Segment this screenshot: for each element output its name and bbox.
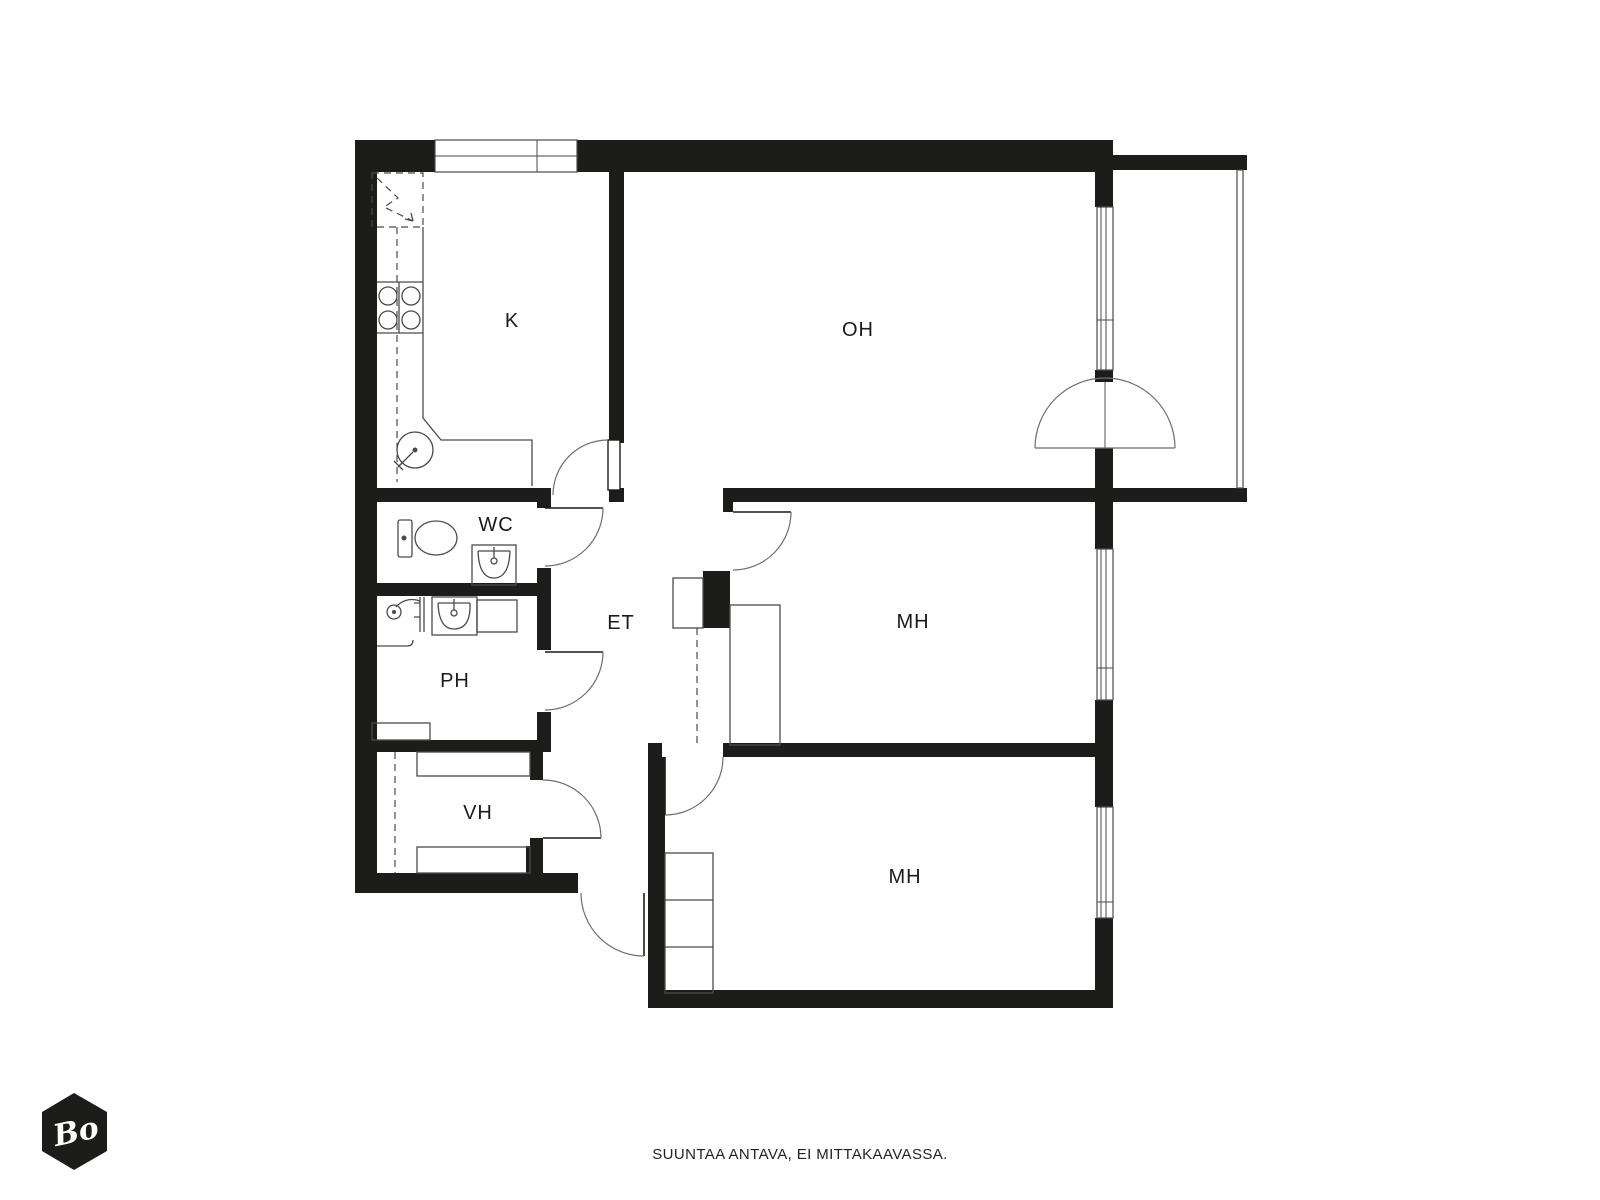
stove-icon — [377, 282, 423, 333]
wall — [1095, 448, 1113, 502]
room-labels: K OH WC ET PH MH VH MH — [440, 310, 929, 888]
hallway-closet — [673, 578, 703, 628]
room-label-bedroom-1: MH — [896, 611, 929, 633]
room-label-living-room: OH — [842, 319, 874, 341]
room-label-kitchen: K — [505, 310, 519, 332]
wall — [377, 583, 551, 596]
wall — [530, 752, 543, 780]
wc-washbasin-icon — [472, 545, 516, 585]
wall — [537, 502, 551, 508]
kitchen-sink-icon — [394, 432, 433, 470]
bedroom-1-wardrobe — [730, 605, 780, 745]
wall — [1095, 370, 1113, 382]
wall — [648, 757, 665, 1008]
wc-door — [545, 508, 603, 566]
wall — [537, 568, 551, 650]
room-label-hallway: ET — [607, 612, 635, 634]
vh-wardrobe — [417, 752, 530, 776]
bedroom-1-window — [1097, 549, 1113, 700]
wall-right-exterior — [1095, 172, 1113, 207]
wall — [648, 990, 1113, 1008]
washroom-door — [545, 652, 603, 710]
kitchen-counter — [423, 227, 532, 486]
room-label-washroom: PH — [440, 670, 470, 692]
living-room-window — [1097, 207, 1113, 370]
wall — [703, 571, 730, 628]
wall — [723, 488, 1097, 502]
washroom-cabinet — [372, 723, 430, 740]
floor-plan-page: K OH WC ET PH MH VH MH Bo SUUNTAA ANTAVA… — [0, 0, 1600, 1200]
wall — [723, 498, 733, 512]
kitchen-window — [435, 140, 577, 172]
doors — [543, 378, 1175, 956]
wall — [577, 140, 1113, 172]
bedroom-2-window — [1097, 807, 1113, 918]
wall — [609, 172, 624, 443]
wall — [1095, 700, 1113, 807]
wall-left-exterior — [355, 172, 377, 893]
balcony-wall — [1113, 155, 1247, 170]
floor-plan: K OH WC ET PH MH VH MH Bo — [0, 0, 1600, 1200]
balcony-railing — [1237, 170, 1243, 488]
wall — [648, 743, 662, 757]
bedroom-2-closet-shelves — [665, 853, 713, 993]
bedroom-2-door — [665, 757, 723, 815]
shower-icon — [377, 597, 424, 646]
wall — [526, 846, 543, 893]
wall — [377, 873, 578, 893]
closet-room-door — [543, 780, 601, 838]
footer-note: SUUNTAA ANTAVA, EI MITTAKAAVASSA. — [0, 1146, 1600, 1163]
vh-wardrobe — [417, 847, 530, 873]
wall — [355, 140, 435, 172]
kitchen-door — [553, 440, 620, 495]
room-label-bedroom-2: MH — [888, 866, 921, 888]
toilet-icon — [398, 520, 457, 557]
wall — [377, 488, 551, 502]
balcony-wall — [1113, 488, 1247, 502]
wall — [377, 740, 551, 752]
room-label-wc: WC — [478, 514, 513, 536]
windows — [435, 140, 1243, 918]
refrigerator-reservation-icon — [372, 173, 423, 227]
bedroom-1-door — [733, 512, 791, 570]
wall — [1095, 918, 1113, 1008]
ph-washbasin-icon — [432, 597, 517, 635]
entrance-door — [581, 893, 644, 956]
wall — [1095, 502, 1113, 549]
balcony-double-door — [1035, 378, 1175, 448]
wall — [537, 712, 551, 740]
room-label-walk-in-closet: VH — [463, 802, 493, 824]
